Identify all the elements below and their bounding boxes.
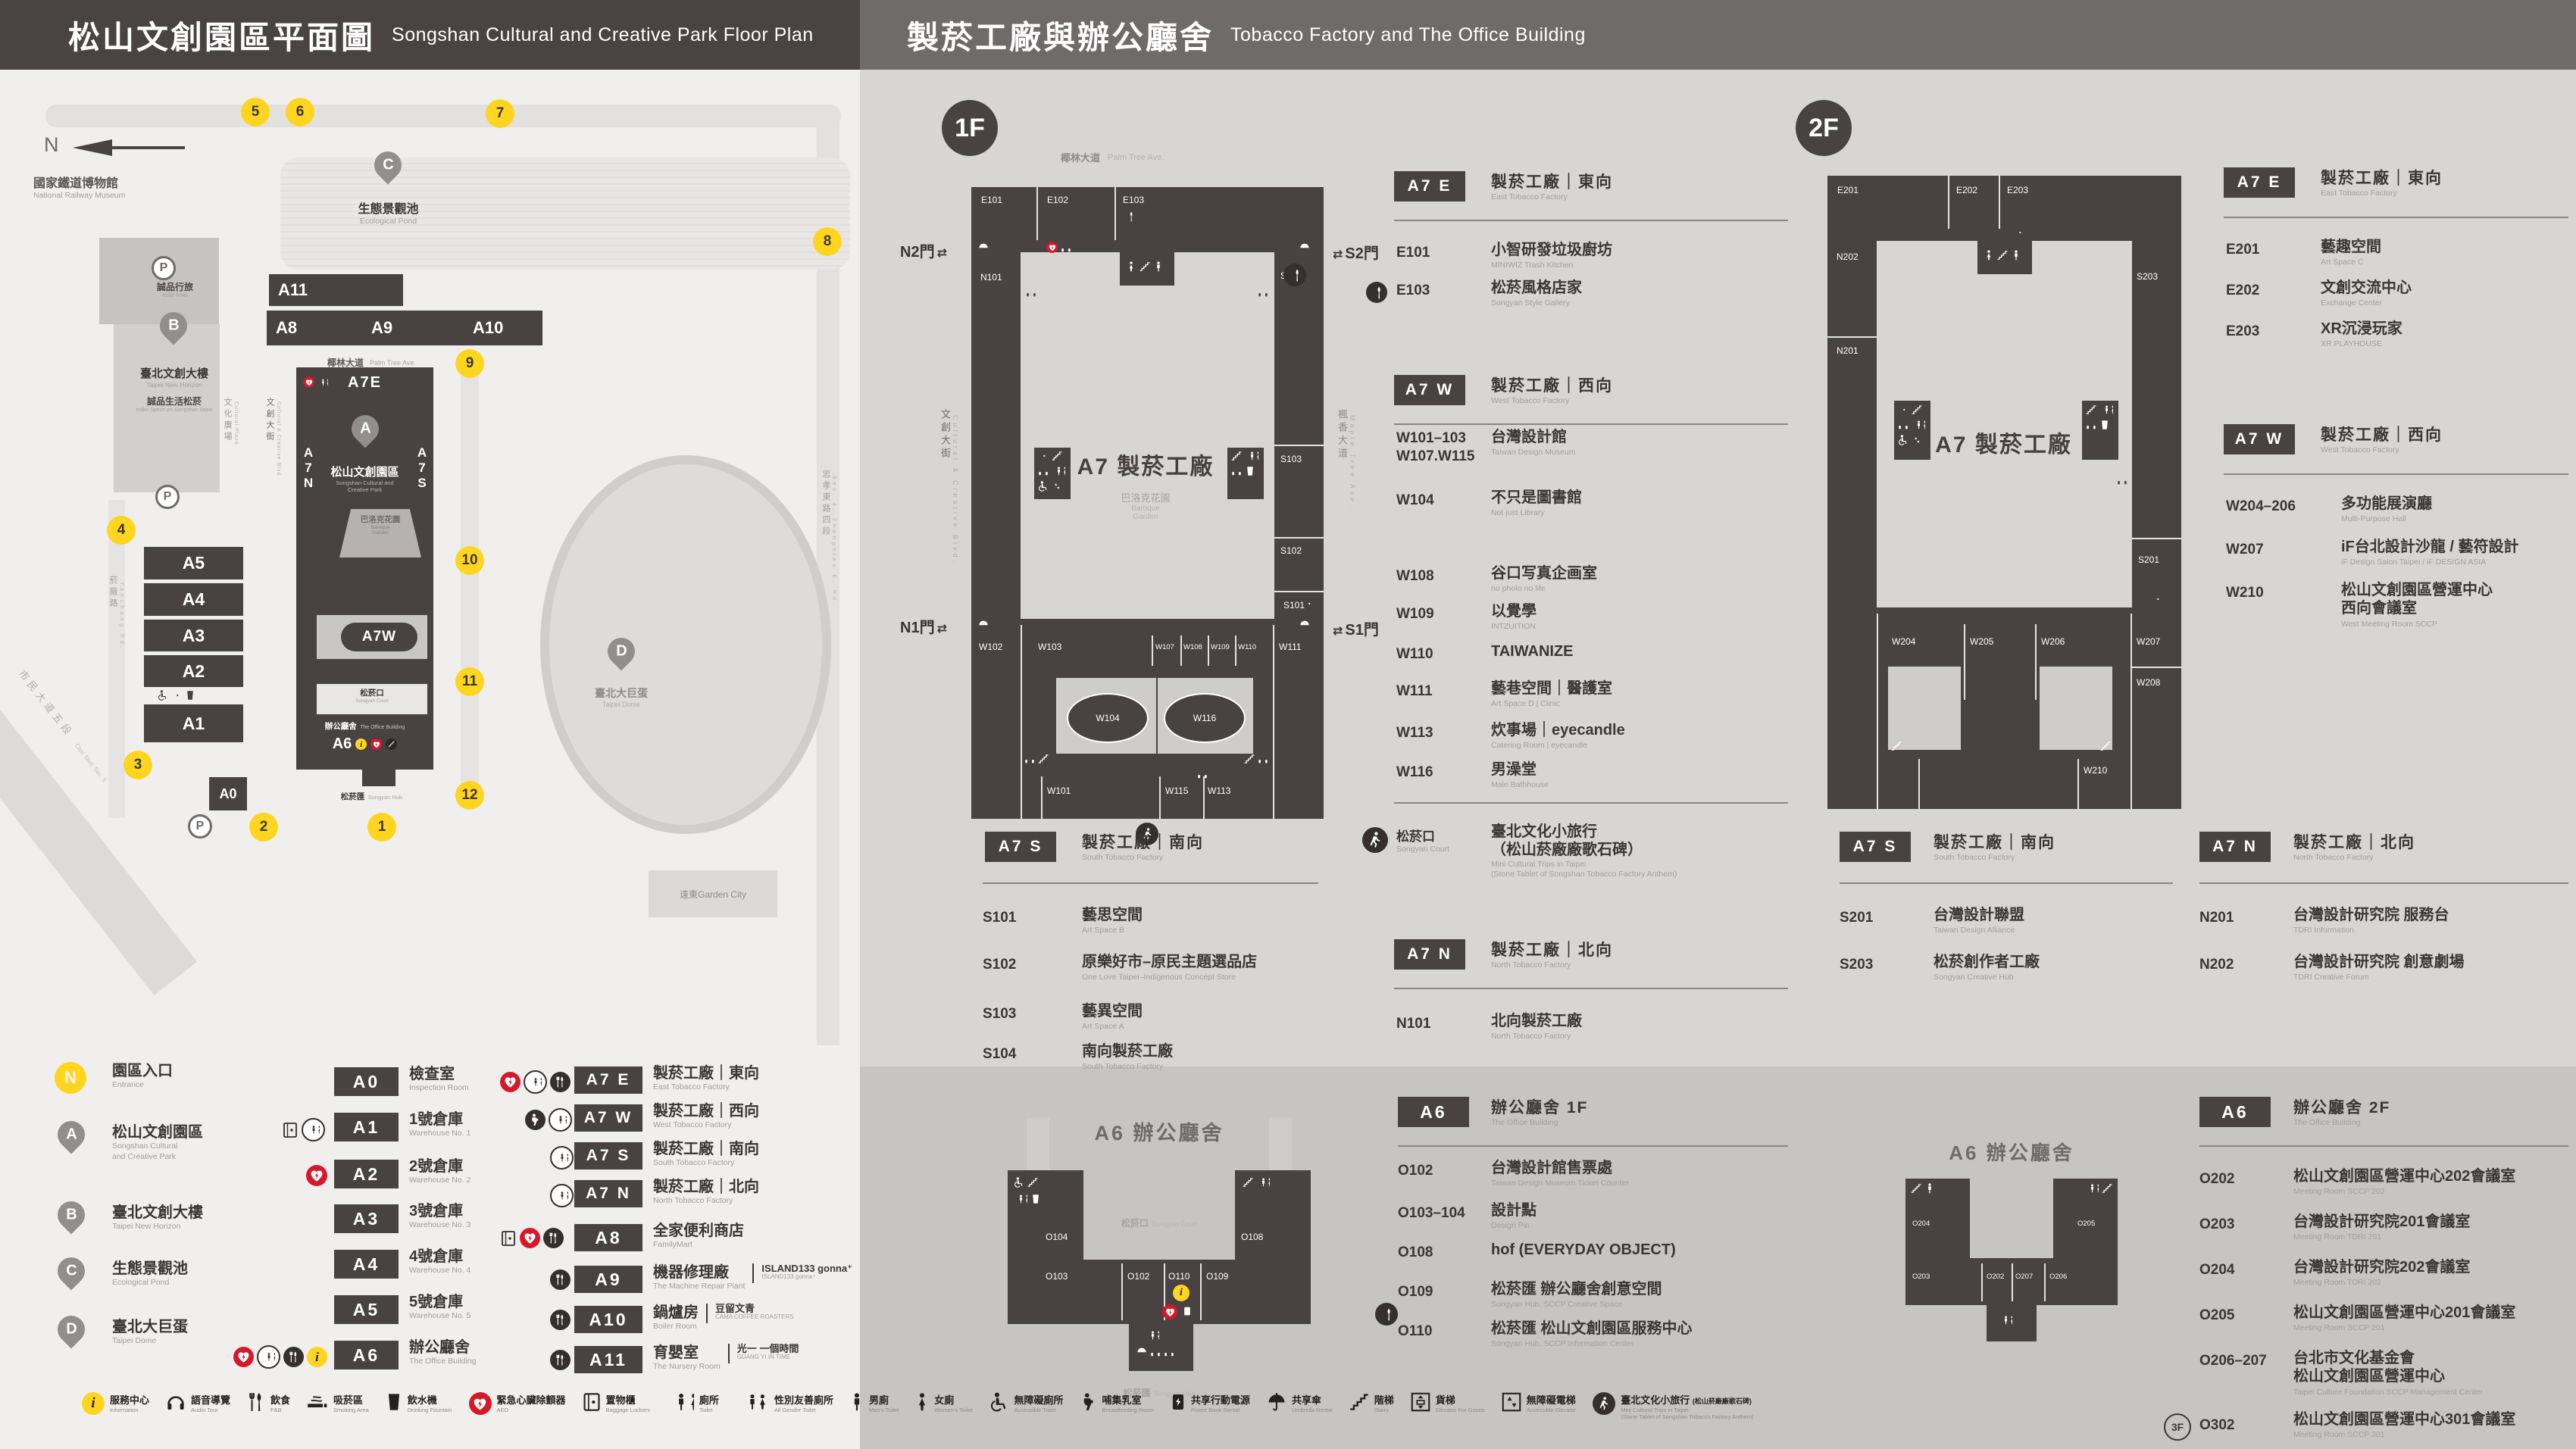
room-label-o110: O110 [1168,1271,1190,1282]
entrance-4: 4 [117,522,126,539]
a7w-en: West Tobacco Factory [653,1120,759,1131]
divider [983,882,1318,884]
list-row: W104 [1396,492,1434,510]
plan-2f: E201 E202 E203 N202 N201 S203 S201 A7 製菸… [1827,176,2181,808]
room-label-s203: S203 [2137,271,2158,282]
a7w-text: A7W [362,629,396,645]
e103-fnb-icon [1124,211,1135,222]
entrance-5: 5 [252,104,260,120]
list-row-name: 台灣設計研究院 創意劇場TDRI Creative Forum [2293,953,2465,983]
legend-icons-a7w [525,1108,572,1132]
list-row: O205 [2199,1307,2234,1325]
block-a9: A9 [362,311,467,345]
list-row: O206–207 [2199,1352,2267,1370]
fac-cn: 共享行動電源 [1191,1392,1250,1407]
divider [2199,1145,2568,1147]
hotel-cn: 誠品行旅 [118,280,232,293]
list-title-a6-2f: 辦公廳舍 2FThe Office Building [2293,1095,2390,1129]
facility-accessible-elevator: 無障礙電梯Accessible Elevator [1502,1392,1576,1413]
row-code: S101 [983,910,1016,926]
legend-park-cn: 松山文創園區 [112,1123,203,1141]
row-code: W116 [1396,764,1433,780]
facility-mini-cultural-trips: 臺北文化小旅行 (松山菸廠廠歌石碑)Mini Cultural Trips in… [1593,1392,1753,1420]
divider [1840,882,2173,884]
court-cn: 松菸口 [360,689,384,698]
fac-cn: 臺北文化小旅行 [1621,1394,1690,1406]
row-en: North Tobacco Factory [1491,1032,1582,1042]
plan1-fnb-icon [1283,264,1306,286]
legend-row-a7e: 製菸工廠｜東向East Tobacco Factory [653,1064,759,1093]
cc-cn: 文創大街 [265,398,274,443]
row-en: Songyan Hub, SCCP Creative Space [1491,1300,1662,1310]
legend-marker-n: N [55,1062,86,1094]
row-code: S103 [983,1006,1016,1022]
list-row: O204 [2199,1261,2234,1279]
row-cn: TAIWANIZE [1491,642,1574,660]
legend-icons-a7s [550,1146,574,1170]
room-label-s102: S102 [1280,545,1302,556]
block-a1: A1 [144,704,243,742]
block-a5: A5 [144,547,243,579]
facility-womens-toilet: 女廁Women's Toilet [915,1392,972,1413]
plan1-palm-en: Palm Tree Ave. [1108,153,1164,162]
badge-a0: A0 [353,1072,380,1092]
row-cn: 松菸匯 辦公廳舍創意空間 [1491,1280,1662,1298]
list-row-name: 以覺學INTZUITION [1491,602,1537,632]
list-row-name: 松菸創作者工廠Songyan Creative Hub [1934,953,2040,983]
legend-icons-a11 [550,1350,571,1370]
list-row-name: 南向製菸工廠South Tobacco Factory [1082,1042,1173,1073]
legend-badge-a1: A1 [334,1113,399,1141]
cc-en: Cultural & Creative Blvd. [276,401,281,478]
a7n1-en: North Tobacco Factory [1491,960,1613,971]
label-songyan-hub: 松菸匯 Songyan Hub [303,789,440,803]
yanchang-en: Yanchang Rd. [119,582,124,651]
gate-s2-label: S2門 [1345,245,1378,262]
room-label-o202: O202 [1987,1273,2004,1281]
legend-d: D [66,1321,77,1338]
room-label-o206: O206 [2049,1273,2067,1281]
plan1-palm-ave: 椰林大道 Palm Tree Ave. [1061,150,1164,164]
row-code: W110 [1396,646,1433,662]
page-title-left-cn: 松山文創園區平面圖 [68,12,375,58]
legend-badge-a7e: A7 E [574,1066,642,1094]
aed-icon [370,739,382,750]
a6-2f-cn: 辦公廳舍 2F [2293,1095,2390,1118]
gate-s1-label: S1門 [1345,622,1378,639]
a7s1-badge: A7 S [999,838,1043,856]
row-en: Design Pin [1491,1221,1537,1232]
room-label-e101: E101 [981,195,1002,205]
a2-label: A2 [183,661,205,682]
row-cn: 原樂好市–原民主題選品店 [1082,953,1257,971]
legend-row-a7n: 製菸工廠｜北向North Tobacco Factory [653,1178,759,1207]
fac-cn: 性別友善廁所 [774,1392,833,1407]
court-text: 臺北文化小旅行 （松山菸廠廠歌石碑） Mini Cultural Trips i… [1491,823,1677,880]
a7-top-icons [303,376,328,388]
list-row-name: 松山文創園區營運中心201會議室Meeting Room SCCP 201 [2293,1304,2515,1334]
a7n-en: North Tobacco Factory [653,1196,759,1207]
list-badge-a7s-1f: A7 S [985,832,1056,862]
row-en: iF Design Salon Taipei / iF DESIGN ASIA [2341,557,2518,568]
list-row-name: 設計點Design Pin [1491,1201,1537,1232]
list-row: E202 [2226,282,2259,300]
room-w104: W104 [1067,693,1149,743]
room-label-o109: O109 [1206,1271,1228,1282]
row-en: Songyan Hub, SCCP Information Center [1491,1339,1693,1350]
room-label-s103: S103 [1280,454,1302,464]
floor-badge-2f: 2F [1796,100,1852,156]
block-a0: A0 [209,777,247,810]
pin-d-letter: D [616,643,627,660]
a7s2-en: South Tobacco Factory [1934,853,2055,863]
plan-a6-2f: A6 辦公廳舍 O204 O205 O203 O202 O207 O206 [1894,1135,2129,1385]
cargo-elevator-icon [1411,1392,1430,1412]
row-code: N101 [1396,1016,1430,1032]
a7e2-en: East Tobacco Factory [2321,189,2443,199]
row-code2: W107.W115 [1396,448,1475,464]
entrance-marker-7: 7 [486,99,514,128]
railway-cn: 國家鐵道博物館 [33,173,125,191]
room-label-w204: W204 [1892,636,1915,647]
badge-a8: A8 [595,1228,621,1248]
prefix-3f: 3F [2171,1421,2184,1433]
list-badge-a7n-1f: A7 N [1394,939,1465,970]
list-row: O110 [1398,1323,1432,1341]
a2-cn: 2號倉庫 [409,1157,470,1176]
garden-en2: Garden [339,530,421,536]
list-row-name: 松菸風格店家Songyan Style Gallery [1491,279,1582,309]
facility-accessible-toilet: 無障礙廁所Accessible Toilet [989,1392,1064,1413]
block-a8: A8 [267,311,365,345]
road-top [45,105,841,127]
list-row: W116 [1396,764,1433,782]
pond-en: Ecological Pond [318,217,458,227]
list-row: O102 [1398,1162,1433,1180]
row-cn: 以覺學 [1491,602,1537,620]
list-row: S101 [983,909,1016,927]
fac-en: Information [110,1407,149,1413]
garden-cn: 巴洛克花園 [339,514,421,525]
court-note-cn: 松菸口 [1396,826,1449,845]
list-badge-a7w-2f: A7 W [2224,424,2295,454]
row-code: S104 [983,1046,1016,1062]
a6-1f-cn: 辦公廳舍 1F [1491,1095,1588,1118]
header-left: 松山文創園區平面圖 Songshan Cultural and Creative… [0,0,860,70]
a7w-cn: 製菸工廠｜西向 [653,1102,759,1120]
list-row-name: XR沉浸玩家XR PLAYHOUSE [2321,320,2402,350]
a9-en: The Machine Repair Plant [653,1282,745,1292]
facility-drinking-fountain: 飲水機Drinking Fountain [386,1392,452,1413]
row-cn: 不只是圖書館 [1491,489,1582,507]
label-dome: 臺北大巨蛋 Taipei Dome [553,685,689,708]
legend-row-a6: 辦公廳舍The Office Building [409,1338,477,1367]
list-badge-a7n-2f: A7 N [2199,832,2271,862]
accessible-elevator-icon [1502,1392,1521,1412]
plan2-bottom-band [1827,607,2181,809]
room-label-w207: W207 [2137,636,2160,647]
legend-badge-a6: A6 [334,1341,399,1369]
legend-icons-a1 [282,1118,325,1141]
room-label-o108: O108 [1241,1232,1263,1242]
entrance-marker-8: 8 [813,227,842,256]
row-en: West Meeting Room SCCP [2341,620,2493,630]
entrance-2: 2 [260,819,268,835]
list-row: N101 [1396,1015,1430,1033]
a8-cn: 全家便利商店 [653,1222,744,1240]
fac-en: All Gender Toilet [774,1407,833,1413]
wheelchair-icon [989,1392,1009,1412]
room-label-n101: N101 [980,272,1002,283]
a3-cn: 3號倉庫 [409,1202,470,1220]
parking-letter: P [160,261,168,275]
a0-label: A0 [219,786,236,802]
fac-en: Men's Toilet [869,1407,899,1413]
row-code: W113 [1396,725,1433,741]
road-yanchang [108,500,125,818]
a7s-en: South Tobacco Factory [653,1158,759,1169]
pond-cn: 生態景觀池 [318,198,458,217]
row-code: W207 [2226,542,2264,557]
list-title-a7w-1f: 製菸工廠｜西向West Tobacco Factory [1491,373,1613,407]
fac-en: Power Bank Rental [1191,1407,1250,1413]
dome-cn: 臺北大巨蛋 [553,685,689,701]
legend-badge-a11: A11 [574,1346,642,1373]
row-code: O202 [2199,1171,2234,1187]
entrance-marker-4: 4 [107,516,136,545]
list-row: E201 [2226,241,2259,259]
fac-en: Audio Tour [191,1407,230,1413]
row-en: Taiwan Design Museum [1491,448,1575,458]
gate-umbrella-icon [1299,242,1310,253]
a6-stub [362,770,395,786]
label-zhongxiao-rd-en: Sec. 4, Zhongxiao E. Rd. [831,476,836,607]
power-bank-icon [1171,1392,1186,1412]
facility-smoking-area: 吸菸區Smoking Area [307,1392,369,1413]
divider [1394,988,1788,989]
badge-a7n: A7 N [586,1185,631,1203]
a7n2-badge: A7 N [2212,838,2258,856]
room-label-o205: O205 [2077,1219,2095,1228]
list-title-a7e-2f: 製菸工廠｜東向East Tobacco Factory [2321,166,2443,199]
yanchang-cn: 菸廠路 [108,576,117,610]
row-cn: 松菸創作者工廠 [1934,953,2040,971]
a10-cn: 鍋爐房 [653,1304,699,1322]
badge-a5: A5 [353,1300,380,1320]
compass-n-label: N [44,133,59,156]
legend-row-a10: 鍋爐房Boiler Room 豆留文青CAMA COFFEE ROASTERS [653,1304,794,1332]
room-label-w110: W110 [1238,643,1256,651]
legend-n: N [64,1068,77,1088]
list-row: S103 [983,1005,1016,1023]
row-cn: 多功能展演廳 [2341,495,2432,513]
fac-cn: 服務中心 [110,1392,149,1407]
row-cn: 谷口写真企画室 [1491,564,1597,582]
fac-en: Accessible Elevator [1527,1407,1576,1413]
block-a7w: A7W [341,623,417,651]
list-row: W113 [1396,724,1433,742]
list-badge-a6-1f: A6 [1398,1097,1469,1127]
aed-icon [469,1392,492,1415]
legend-dome: 臺北大巨蛋Taipei Dome [112,1318,188,1347]
legend-entrance-cn: 園區入口 [112,1062,173,1080]
fac-en: Baggage Lockers [606,1407,650,1413]
list-row-name: 小智研發垃圾廚坊MINIWIZ Trash Kitchen [1491,241,1612,271]
entrance-11: 11 [462,673,477,690]
a11-cn: 育嬰室 [653,1344,721,1362]
row-en: Exchange Center [2321,298,2412,309]
a3-label: A3 [183,626,205,646]
a7w1-cn: 製菸工廠｜西向 [1491,373,1613,396]
a5-label: A5 [183,553,205,573]
row-en: no photo no life [1491,584,1597,595]
legend-badge-a4: A4 [334,1250,399,1279]
row-en: Art Space A [1082,1022,1143,1032]
row-cn: 小智研發垃圾廚坊 [1491,241,1612,259]
legend-badge-a10: A10 [574,1306,642,1333]
room-label-e103: E103 [1123,195,1144,205]
list-row: O203 [2199,1216,2234,1234]
plan1-garden-en1: Baroque [1017,504,1274,513]
dome-en: Taipei Dome [553,701,689,708]
a1-en: Warehouse No. 1 [409,1129,470,1139]
floor-badge-1f: 1F [942,100,998,156]
legend-pond: 生態景觀池Ecological Pond [112,1260,188,1288]
legend-icons-a8 [500,1228,564,1248]
row-cn: 台灣設計研究院201會議室 [2293,1213,2470,1231]
entrance-marker-5: 5 [241,98,270,126]
row-en: Art Space D | Clinic [1491,699,1612,710]
a6-en: The Office Building [409,1357,477,1367]
a0-en: Inspection Room [409,1083,469,1094]
fac-cn: 吸菸區 [333,1392,369,1407]
entrance-10: 10 [461,552,477,569]
row-cn: 松菸匯 松山文創園區服務中心 [1491,1319,1693,1338]
list-row-name: 炊事場｜eyecandleCatering Room | eyecandle [1491,721,1625,751]
legend-row-a1: 1號倉庫Warehouse No. 1 [409,1110,470,1139]
block-a3: A3 [144,620,243,651]
facility-all-gender-toilet: 性別友善廁所All Gender Toilet [736,1392,833,1413]
legend-icons-a2 [306,1165,327,1186]
list-row-name: iF台北設計沙龍 / 藝符設計iF Design Salon Taipei / … [2341,538,2518,568]
entrance-marker-3: 3 [123,751,152,779]
list-row: W109 [1396,605,1434,623]
a7n2-en: North Tobacco Factory [2293,853,2415,863]
a6-main-bar [1008,1260,1311,1324]
legend-park: 松山文創園區Songshan Culturaland Creative Park [112,1123,203,1163]
row-cn: 藝異空間 [1082,1002,1143,1020]
woman-icon [915,1392,929,1412]
entrance-8: 8 [824,233,832,250]
list-row-name: 原樂好市–原民主題選品店One Love Taipei–Indigenous C… [1082,953,1257,983]
walk-icon [1362,827,1388,853]
page-title-right-cn: 製菸工廠與辦公廳舍 [907,12,1214,58]
row-code: E201 [2226,242,2259,258]
fac-cn: 女廁 [934,1392,972,1407]
row-code: E103 [1396,283,1430,298]
label-yanchang-rd-en: Yanchang Rd. [119,582,124,651]
fac-en: F&B [270,1407,290,1413]
divider [1398,1145,1788,1147]
fac-cn: 共享傘 [1292,1392,1333,1407]
plan-1f: E101 E102 E103 N101 S104 S103 S102 S101 … [971,187,1324,819]
row-cn: 台灣設計館售票處 [1491,1159,1629,1177]
list-badge-a7e-1f: A7 E [1394,171,1465,201]
legend-icons-a7e [500,1070,571,1094]
office-cn: 辦公廳舍 [325,722,357,731]
parking-icon-2: P [155,485,180,509]
gate-umbrella-icon [978,620,989,630]
a11-brand: 光一 一個時間 [737,1343,799,1354]
fac-cn: 廁所 [699,1392,719,1407]
hub-en: Songyan Hub [368,794,402,801]
badge-a11: A11 [589,1350,627,1370]
a7e2-badge: A7 E [2237,173,2282,192]
list-row-name: 台灣設計研究院201會議室Meeting Room TDRI 201 [2293,1213,2470,1243]
a7e-text: A7E [348,374,382,391]
a7e-en: East Tobacco Factory [653,1082,759,1093]
list-row-name: 藝趣空間Art Space C [2321,238,2381,268]
legend-b: B [66,1207,77,1224]
gate-n1: N1門⇄ [900,615,949,637]
fac-cn: 哺集乳室 [1102,1392,1154,1407]
legend-badge-a8: A8 [574,1224,642,1251]
list-row: O108 [1398,1244,1433,1262]
legend-c: C [66,1263,77,1280]
a6-stairwell [1027,1118,1049,1171]
row-cn: XR沉浸玩家 [2321,320,2402,338]
list-title-a7s-2f: 製菸工廠｜南向South Tobacco Factory [1934,830,2055,863]
room-label-w116: W116 [1193,713,1216,723]
list-row-name: 台灣設計館售票處Taiwan Design Museum Ticket Coun… [1491,1159,1629,1189]
row-code: O109 [1398,1284,1433,1300]
facility-lockers: 置物櫃Baggage Lockers [583,1392,650,1413]
row-cn: hof (EVERYDAY OBJECT) [1491,1241,1676,1259]
row-code: O102 [1398,1163,1433,1179]
a6-2f-badge: A6 [2221,1102,2248,1123]
divider [1394,423,1788,425]
row-code: E202 [2226,283,2259,298]
gate-umbrella-icon [978,242,989,253]
room-w116: W116 [1164,693,1246,743]
facility-fnb: 飲食F&B [247,1392,290,1413]
list-row-name: 谷口写真企画室no photo no life [1491,564,1597,595]
room-label-o204: O204 [1912,1219,1930,1228]
divider [1394,220,1788,221]
a6-text: A6 [333,735,352,753]
list-row: S102 [983,956,1016,974]
row-code: O205 [2199,1307,2234,1323]
facility-breastfeeding-room: 哺集乳室Breastfeeding Room [1080,1392,1154,1413]
row-code: S102 [983,957,1016,973]
legend-horizon: 臺北文創大樓Taipei New Horizon [112,1204,203,1232]
row-en: Meeting Room SCCP 301 [2293,1430,2515,1441]
badge-a4: A4 [353,1254,380,1275]
facility-umbrella-rental: 共享傘Umbrella Rental [1267,1392,1333,1413]
label-railway-museum: 國家鐵道博物館 National Railway Museum [33,173,125,201]
label-pond: 生態景觀池 Ecological Pond [318,198,458,227]
gate-s1: ⇄S1門 [1330,617,1379,639]
court-line2: （松山菸廠廠歌石碑） [1491,841,1677,859]
a3-en: Warehouse No. 3 [409,1220,470,1231]
court-label: 松菸口Songyan Court [1396,826,1449,855]
a10-brand-sub: CAMA COFFEE ROASTERS [715,1314,794,1321]
fac-cn: 無障礙廁所 [1014,1392,1064,1407]
room-label-w115: W115 [1165,785,1188,796]
room-label-o102: O102 [1127,1271,1149,1282]
entrance-12: 12 [461,787,477,804]
plan-a6-1f: A6 辦公廳舍 松菸口 Songyan Court O104 O108 O103… [1000,1112,1394,1415]
